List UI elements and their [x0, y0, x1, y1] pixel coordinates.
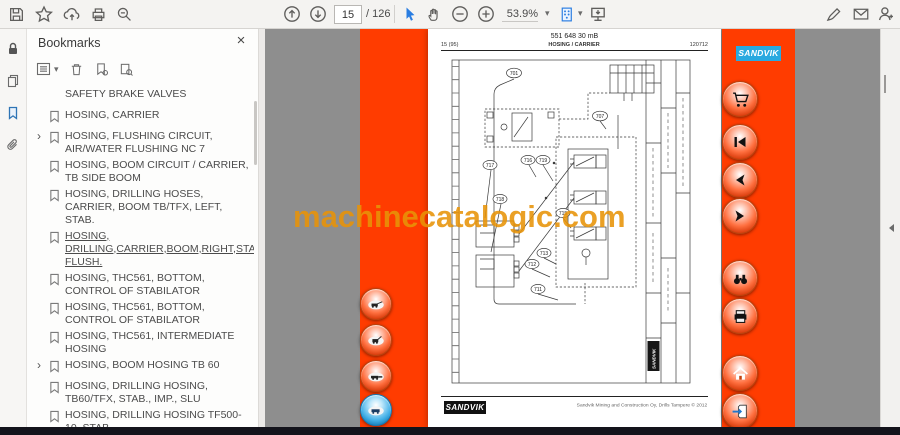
bookmark-item[interactable]: › HOSING, BOOM HOSING TB 60 [27, 357, 254, 378]
delete-bookmark-button[interactable] [69, 62, 84, 77]
bookmark-item[interactable]: › HOSING, DRILLING HOSES, CARRIER, BOOM … [27, 186, 254, 228]
close-panel-button[interactable]: × [233, 33, 249, 49]
bookmark-icon [49, 272, 65, 290]
loader-icon [367, 369, 385, 383]
arrow-down-circle-icon [309, 5, 327, 23]
print-icon [90, 6, 107, 23]
bookmark-icon [49, 409, 65, 427]
search-button[interactable] [114, 4, 134, 24]
cloud-upload-icon [63, 5, 81, 23]
bookmark-label: HOSING, DRILLING,CARRIER,BOOM,RIGHT,STAB… [65, 230, 254, 269]
truck-icon [367, 403, 385, 417]
new-bookmark-button[interactable] [94, 62, 109, 77]
chevron-right-icon[interactable]: › [37, 130, 49, 142]
zoom-in-button[interactable] [476, 4, 496, 24]
panel-resize-handle[interactable] [259, 29, 265, 427]
machine-category-1-button[interactable] [360, 288, 392, 320]
attachments-pane-button[interactable] [0, 133, 26, 157]
callout-label: 717 [486, 163, 495, 169]
skip-back-icon [731, 133, 749, 151]
page-total-label: / 126 [366, 8, 390, 20]
bookmark-item[interactable]: › HOSING, THC561, BOTTOM, CONTROL OF STA… [27, 270, 254, 299]
callout-label: 713 [540, 251, 549, 257]
select-tool-button[interactable] [400, 4, 420, 24]
bookmarks-pane-button[interactable] [0, 101, 26, 125]
previous-button[interactable] [722, 162, 758, 198]
home-icon [731, 364, 750, 383]
account-button[interactable] [876, 4, 896, 24]
bookmark-item[interactable]: › HOSING, THC561, INTERMEDIATE HOSING [27, 328, 254, 357]
document-page-ref: 15 (95) [441, 42, 458, 48]
cart-icon [731, 90, 750, 109]
options-list-icon [36, 62, 52, 76]
chevron-right-icon[interactable]: › [37, 359, 49, 371]
next-page-button[interactable] [308, 4, 328, 24]
header-rule [441, 50, 708, 51]
collapse-pane-arrow-icon[interactable] [889, 224, 894, 232]
bookmark-label: HOSING, THC561, BOTTOM, CONTROL OF STABI… [65, 301, 250, 327]
bottom-bar [0, 427, 900, 435]
bookmark-search-icon [119, 62, 134, 77]
bookmark-label: HOSING, FLUSHING CIRCUIT, AIR/WATER FLUS… [65, 130, 250, 156]
bookmark-icon [49, 380, 65, 398]
callout-label: 716 [524, 158, 533, 164]
minus-circle-icon [451, 5, 469, 23]
bookmark-item[interactable]: › HOSING, THC561, BOTTOM, CONTROL OF STA… [27, 299, 254, 328]
email-button[interactable] [851, 4, 871, 24]
sandvik-footer-logo: SANDVIK [444, 401, 486, 414]
bookmark-icon [49, 301, 65, 319]
favorites-button[interactable] [34, 4, 54, 24]
save-button[interactable] [6, 4, 26, 24]
trash-icon [69, 62, 84, 77]
callout-label: 711 [534, 287, 542, 293]
bookmark-item[interactable]: › SAFETY BRAKE VALVES [27, 87, 254, 107]
exit-door-icon [731, 402, 750, 421]
print-button[interactable] [88, 4, 108, 24]
envelope-icon [852, 5, 870, 23]
shopping-cart-button[interactable] [722, 81, 758, 117]
scrollbar-thumb[interactable] [884, 75, 886, 93]
arrow-up-circle-icon [283, 5, 301, 23]
bookmark-label: HOSING, DRILLING HOSING, TB60/TFX, STAB.… [65, 380, 250, 406]
machine-category-2-button[interactable] [360, 324, 392, 356]
lock-icon [5, 41, 21, 57]
drill-rig-icon [367, 297, 385, 311]
pages-icon [5, 73, 21, 89]
cursor-icon [402, 6, 418, 22]
bookmark-icon [49, 359, 65, 377]
toolbar-divider [394, 5, 395, 23]
bookmark-label: SAFETY BRAKE VALVES [65, 88, 250, 101]
bookmark-label: HOSING, BOOM HOSING TB 60 [65, 359, 250, 372]
hand-icon [426, 6, 443, 23]
monitor-download-icon [589, 5, 607, 23]
sandvik-logo: SANDVIK [736, 46, 781, 61]
viewer-scrollbar[interactable] [880, 29, 900, 427]
catalog-rail-right: SANDVIK [722, 29, 795, 427]
machine-category-3-button[interactable] [360, 360, 392, 392]
page-fit-button[interactable] [556, 4, 576, 24]
search-document-button[interactable] [722, 260, 758, 296]
copyright-text: Sandvik Mining and Construction Oy, Dril… [576, 403, 707, 408]
protection-pane-button[interactable] [0, 37, 26, 61]
callout-label: 712 [528, 262, 537, 268]
page-number-input[interactable] [334, 5, 362, 24]
bookmark-icon [49, 109, 65, 127]
bookmark-icon [5, 105, 21, 121]
document-title: HOSING / CARRIER [458, 42, 689, 48]
person-plus-icon [877, 5, 895, 23]
bookmark-item[interactable]: › HOSING, FLUSHING CIRCUIT, AIR/WATER FL… [27, 128, 254, 157]
bookmark-label: HOSING, DRILLING HOSING TF500-10, STAB. [65, 409, 250, 428]
binoculars-icon [731, 269, 750, 288]
bookmarks-scrollbar[interactable] [254, 101, 257, 165]
document-code: 551 648 30 mB [428, 33, 721, 40]
machine-category-4-button[interactable] [360, 394, 392, 426]
bookmark-item[interactable]: › HOSING, CARRIER [27, 107, 254, 128]
bookmark-item[interactable]: › HOSING, BOOM CIRCUIT / CARRIER, TB SID… [27, 157, 254, 186]
bookmark-icon [49, 330, 65, 348]
save-icon [8, 6, 25, 23]
bookmark-label: HOSING, CARRIER [65, 109, 250, 122]
bookmark-icon [49, 130, 65, 148]
plus-circle-icon [477, 5, 495, 23]
caret-down-icon[interactable]: ▾ [578, 9, 583, 18]
bookmark-label: HOSING, THC561, INTERMEDIATE HOSING [65, 330, 250, 356]
share-button[interactable] [62, 4, 82, 24]
hand-tool-button[interactable] [424, 4, 444, 24]
next-button[interactable] [722, 198, 758, 234]
bookmark-label: HOSING, DRILLING HOSES, CARRIER, BOOM TB… [65, 188, 250, 227]
bookmarks-panel-title: Bookmarks [38, 36, 101, 50]
navigation-pane-rail [0, 29, 27, 427]
sign-button[interactable] [824, 4, 844, 24]
title-block-logo: SANDVIK [652, 348, 657, 369]
paperclip-icon [5, 137, 21, 153]
document-number: 120712 [690, 42, 708, 48]
bookmark-icon [49, 230, 65, 248]
footer-rule [441, 396, 708, 397]
exit-button[interactable] [722, 393, 758, 427]
page-fit-icon [558, 6, 575, 23]
bookmark-item[interactable]: › HOSING, DRILLING HOSING, TB60/TFX, STA… [27, 378, 254, 407]
forward-arrow-icon [731, 207, 749, 225]
watermark-text: machinecatalogic.com [293, 199, 626, 235]
presentation-mode-button[interactable] [588, 4, 608, 24]
bookmarks-panel: Bookmarks × ▾ › [27, 29, 259, 427]
star-icon [35, 5, 53, 23]
bookmark-icon [49, 188, 65, 206]
expand-bookmark-button[interactable] [119, 62, 134, 77]
pdf-viewer-app: / 126 53.9% ▾ ▾ [0, 0, 900, 435]
print-page-button[interactable] [722, 298, 758, 334]
callout-label: 719 [539, 158, 548, 164]
callout-label: 707 [596, 114, 605, 120]
search-minus-icon [116, 6, 133, 23]
zoom-out-button[interactable] [450, 4, 470, 24]
bookmark-options-button[interactable]: ▾ [36, 62, 59, 76]
bookmark-label: HOSING, BOOM CIRCUIT / CARRIER, TB SIDE … [65, 159, 250, 185]
previous-page-button[interactable] [282, 4, 302, 24]
bookmark-icon [49, 159, 65, 177]
bookmarks-list: › SAFETY BRAKE VALVES › HOSING, CARRIER … [27, 87, 254, 427]
bookmark-label: HOSING, THC561, BOTTOM, CONTROL OF STABI… [65, 272, 250, 298]
first-page-button[interactable] [722, 124, 758, 160]
drill-rig-icon [367, 333, 385, 347]
bookmark-item[interactable]: › HOSING, DRILLING HOSING TF500-10, STAB… [27, 407, 254, 427]
bookmark-add-icon [94, 62, 109, 77]
callout-label: 701 [510, 71, 519, 77]
home-button[interactable] [722, 355, 758, 391]
bookmark-item[interactable]: › HOSING, DRILLING,CARRIER,BOOM,RIGHT,ST… [27, 228, 254, 270]
pages-pane-button[interactable] [0, 69, 26, 93]
back-arrow-icon [731, 171, 749, 189]
pen-icon [825, 5, 843, 23]
top-toolbar: / 126 53.9% ▾ ▾ [0, 0, 900, 29]
zoom-level-dropdown[interactable]: 53.9% [502, 8, 538, 22]
caret-down-icon[interactable]: ▾ [545, 9, 550, 18]
printer-icon [731, 307, 750, 326]
caret-down-icon: ▾ [54, 65, 59, 74]
